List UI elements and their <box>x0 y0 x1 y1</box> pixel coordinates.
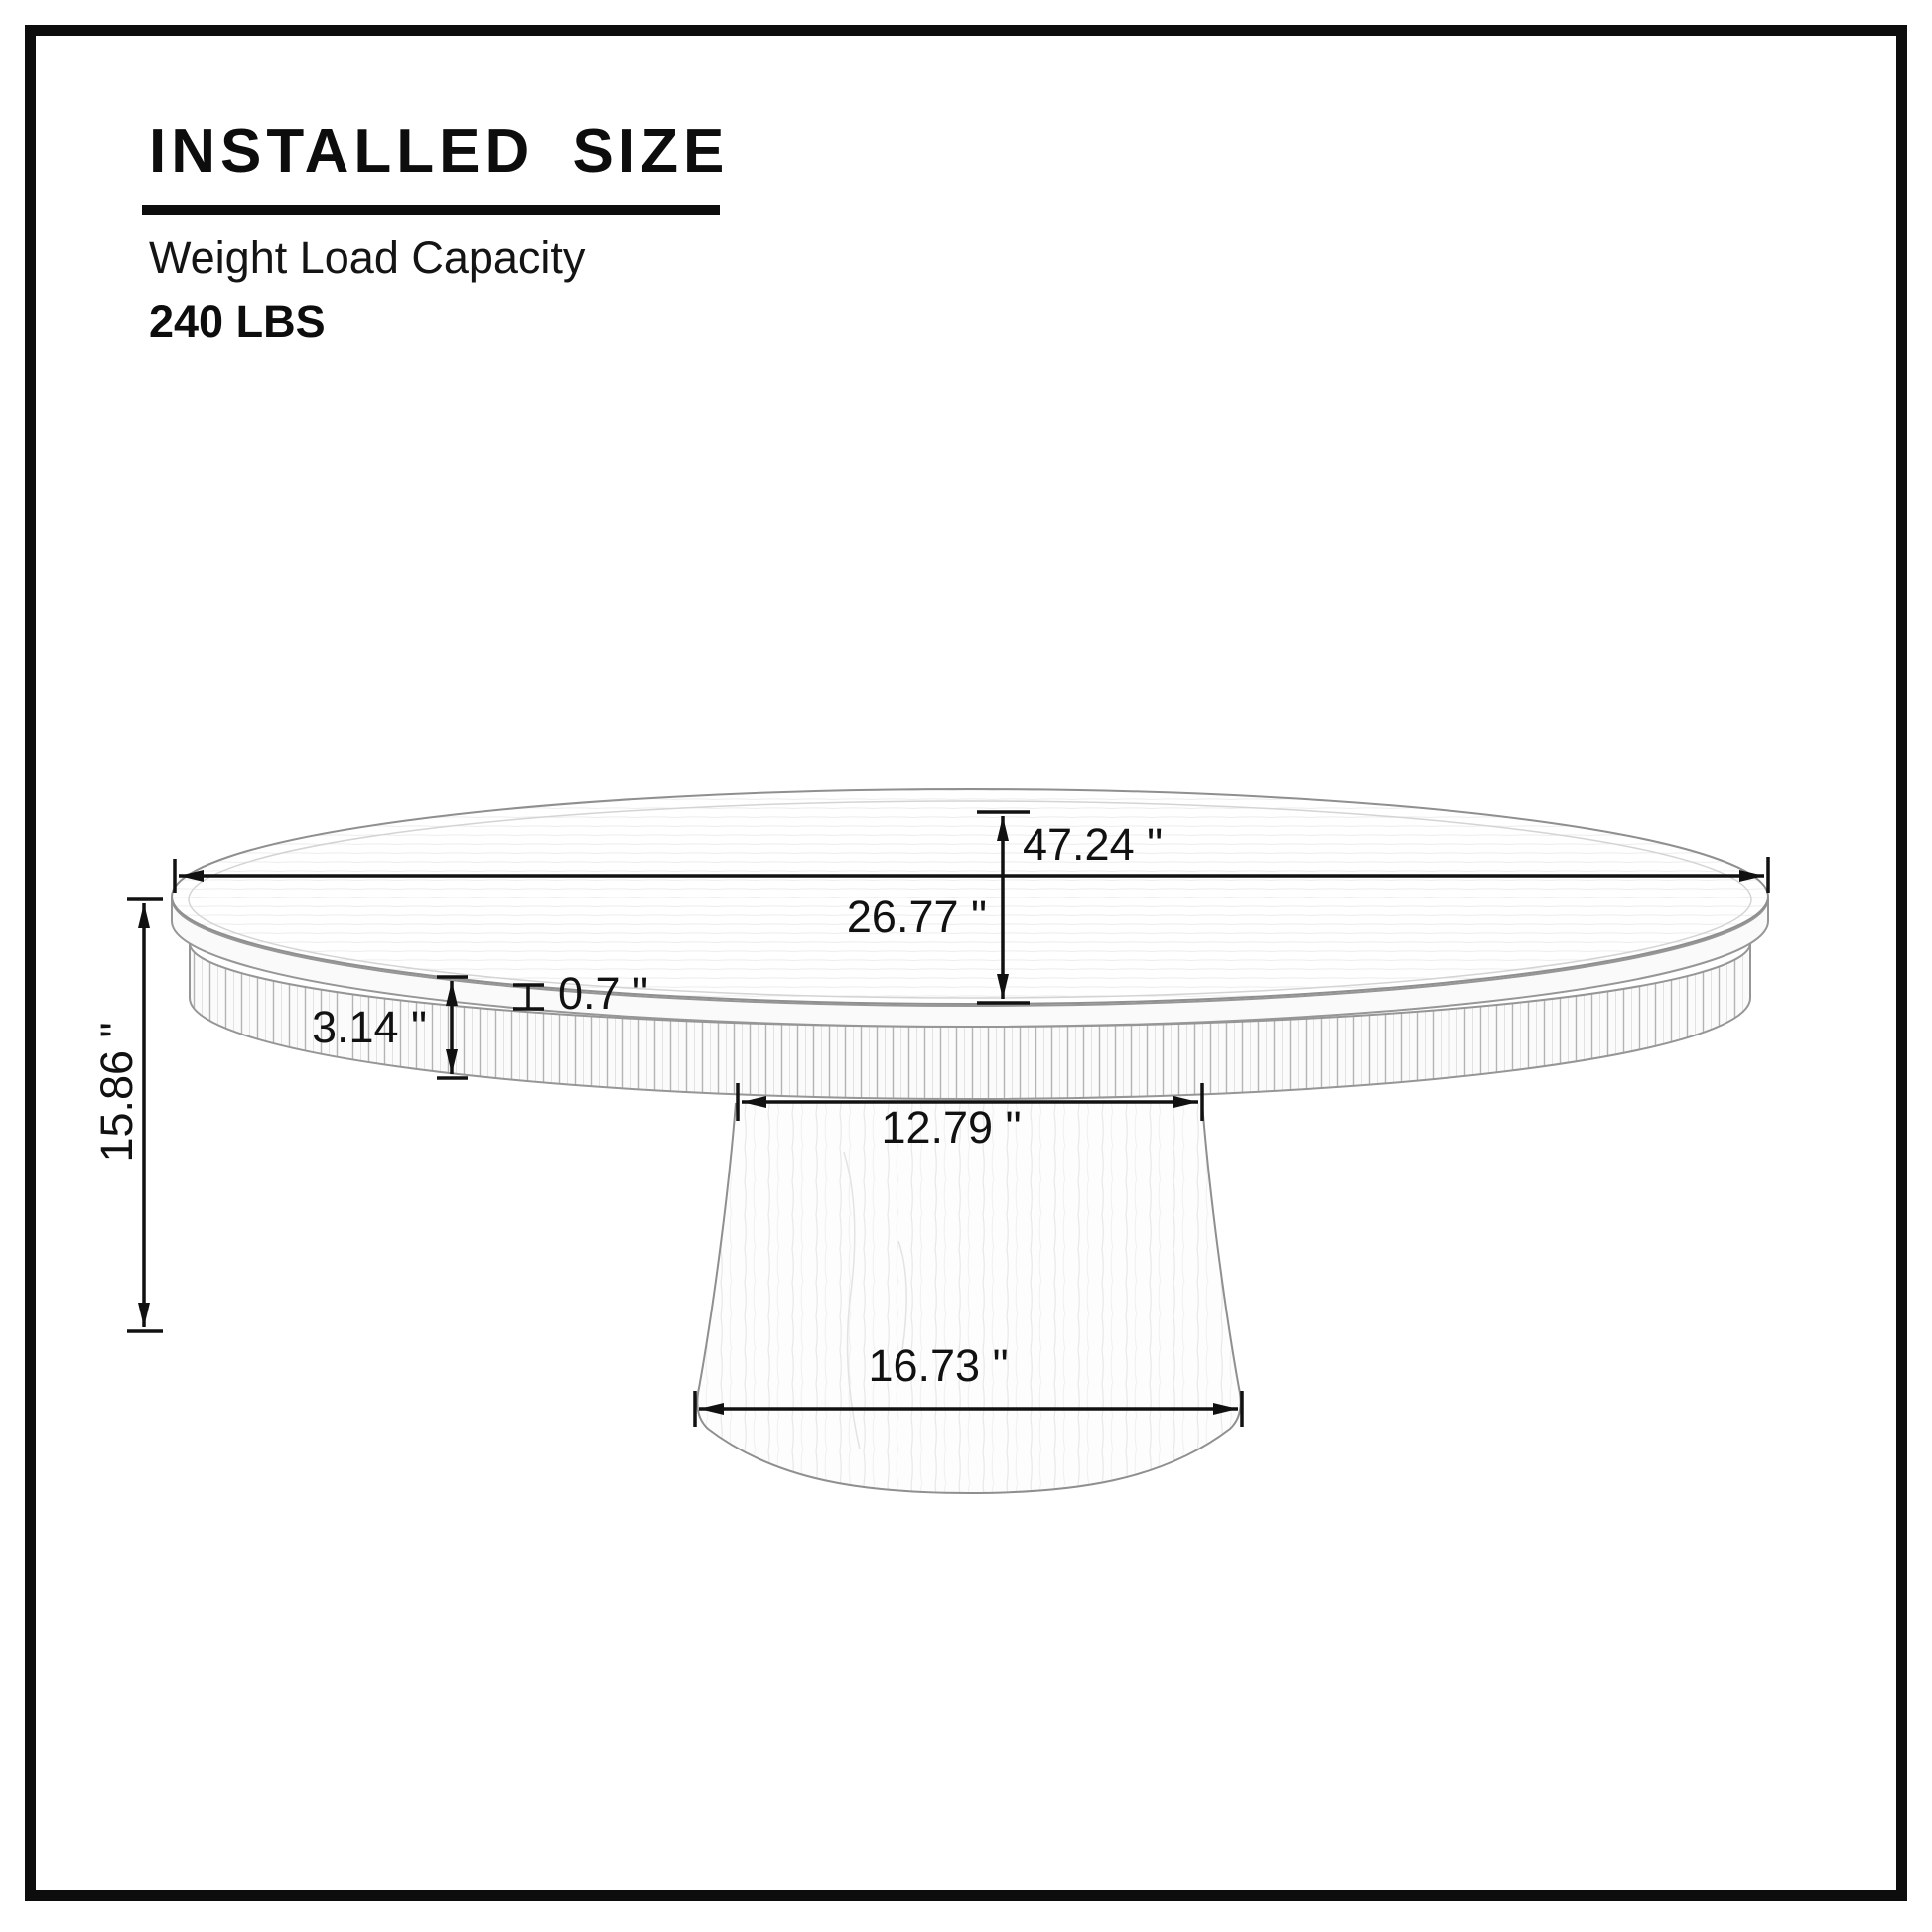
table-dimension-drawing: 47.24 " 26.77 " 0.7 " 3.14 " 15.86 " 12.… <box>0 0 1932 1932</box>
dim-apron-height-label: 3.14 " <box>312 1002 427 1052</box>
dim-top-thickness-label: 0.7 " <box>558 968 648 1019</box>
dim-top-depth-label: 26.77 " <box>847 892 987 942</box>
dim-pedestal-base-width-label: 16.73 " <box>868 1340 1008 1391</box>
pedestal-base <box>697 1103 1240 1493</box>
dim-overall-height-label: 15.86 " <box>91 1022 142 1162</box>
dim-top-diameter-label: 47.24 " <box>1023 819 1163 870</box>
dim-pedestal-top-width-label: 12.79 " <box>881 1102 1021 1153</box>
dim-overall-height: 15.86 " <box>91 899 163 1331</box>
